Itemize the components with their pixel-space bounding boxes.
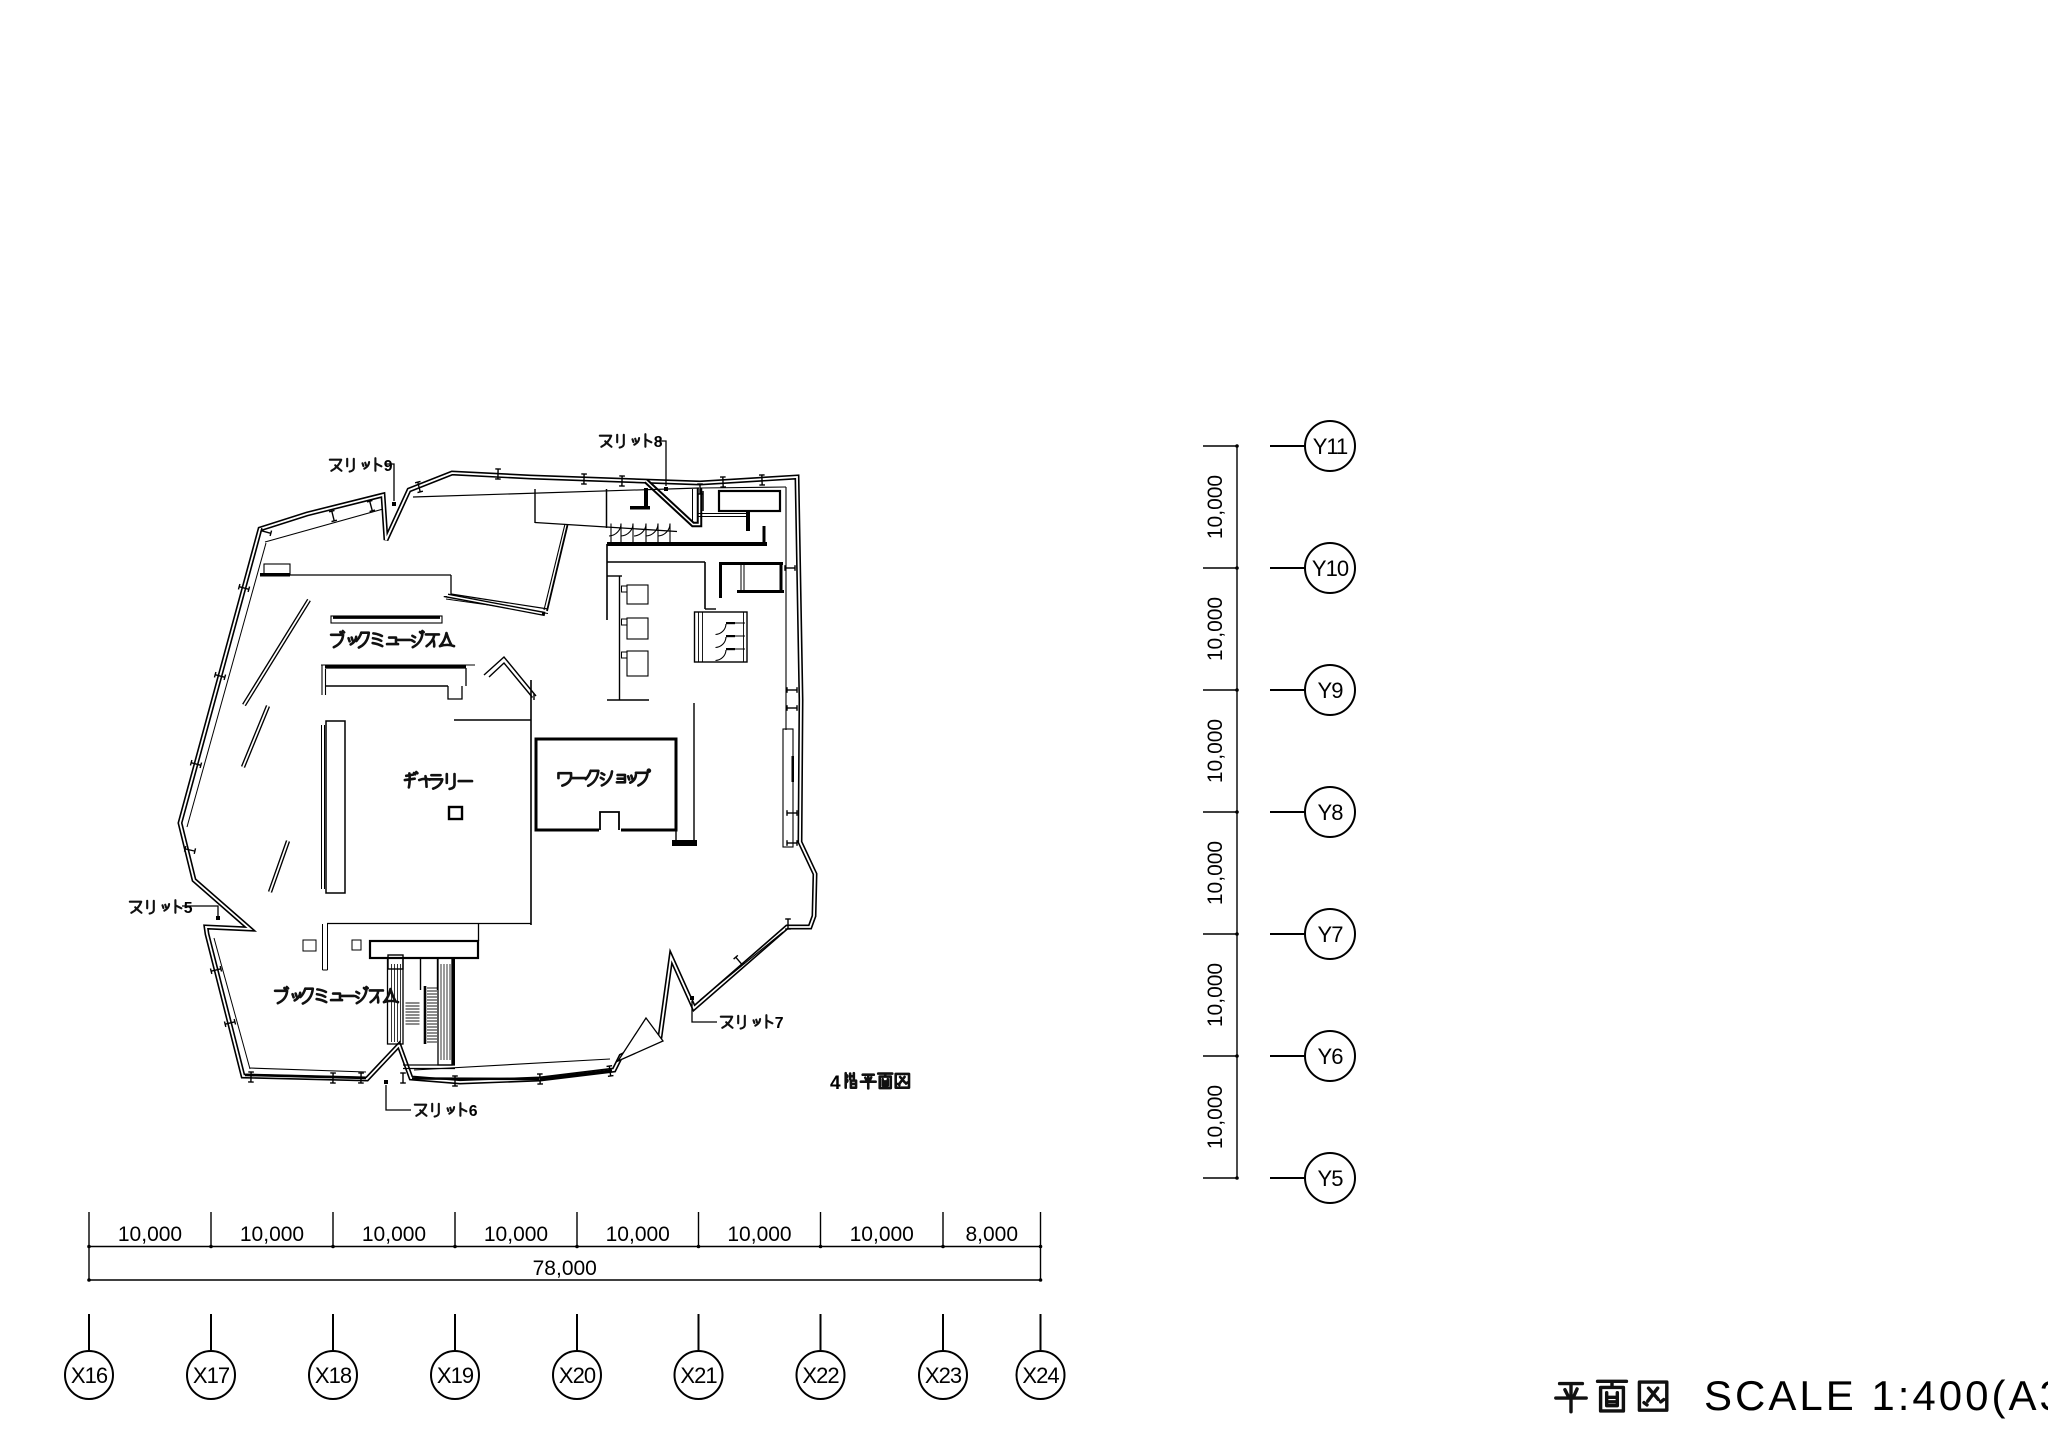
svg-text:X16: X16 — [71, 1363, 108, 1388]
svg-text:Y8: Y8 — [1318, 800, 1344, 825]
svg-text:Y5: Y5 — [1318, 1166, 1344, 1191]
svg-text:X23: X23 — [925, 1363, 962, 1388]
svg-text:X24: X24 — [1022, 1363, 1059, 1388]
svg-text:X22: X22 — [802, 1363, 839, 1388]
svg-text:X21: X21 — [680, 1363, 717, 1388]
svg-text:X19: X19 — [437, 1363, 474, 1388]
svg-text:78,000: 78,000 — [533, 1257, 597, 1280]
svg-text:10,000: 10,000 — [1204, 841, 1227, 905]
svg-text:Y10: Y10 — [1312, 556, 1349, 581]
svg-text:7: 7 — [775, 1015, 784, 1032]
svg-text:Y6: Y6 — [1318, 1044, 1344, 1069]
svg-text:10,000: 10,000 — [118, 1223, 182, 1246]
svg-text:10,000: 10,000 — [1204, 597, 1227, 661]
svg-text:10,000: 10,000 — [1204, 475, 1227, 539]
svg-text:Y9: Y9 — [1318, 678, 1344, 703]
svg-text:5: 5 — [184, 900, 193, 917]
svg-text:Y7: Y7 — [1318, 922, 1344, 947]
svg-text:X18: X18 — [315, 1363, 352, 1388]
svg-text:10,000: 10,000 — [850, 1223, 914, 1246]
svg-text:10,000: 10,000 — [1204, 963, 1227, 1027]
svg-text:10,000: 10,000 — [1204, 719, 1227, 783]
svg-text:10,000: 10,000 — [362, 1223, 426, 1246]
svg-text:4: 4 — [830, 1073, 841, 1094]
svg-text:10,000: 10,000 — [727, 1223, 791, 1246]
svg-text:SCALE 1:400(A3): SCALE 1:400(A3) — [1704, 1372, 2048, 1419]
svg-text:8,000: 8,000 — [965, 1223, 1018, 1246]
svg-text:6: 6 — [469, 1103, 478, 1120]
svg-text:Y11: Y11 — [1313, 434, 1348, 459]
svg-text:X17: X17 — [193, 1363, 230, 1388]
svg-text:8: 8 — [654, 434, 663, 451]
svg-text:10,000: 10,000 — [606, 1223, 670, 1246]
svg-text:9: 9 — [384, 458, 393, 475]
svg-text:10,000: 10,000 — [1204, 1085, 1227, 1149]
svg-text:X20: X20 — [559, 1363, 596, 1388]
svg-text:10,000: 10,000 — [484, 1223, 548, 1246]
svg-text:10,000: 10,000 — [240, 1223, 304, 1246]
